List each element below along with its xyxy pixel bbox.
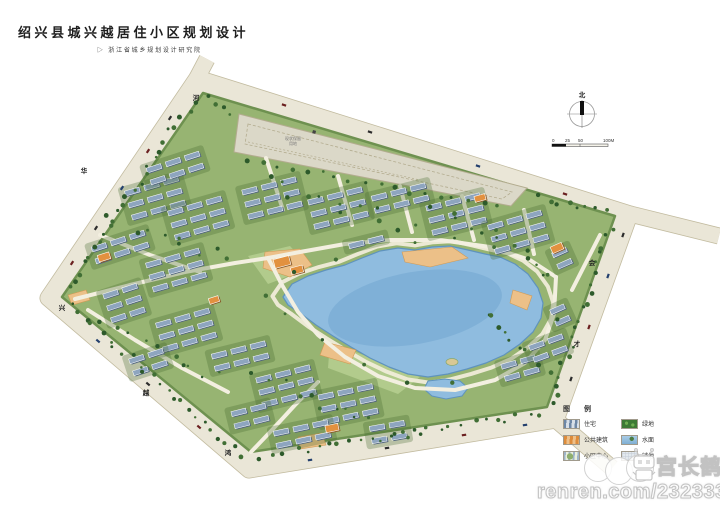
road-name-label: 华 [81,166,88,175]
road-name-label: 才 [574,339,581,348]
legend-label: 住宅 [584,419,596,428]
island-shape [446,359,458,366]
legend-item-residential: 住宅 [563,418,619,429]
north-label: 北 [579,90,586,99]
road-name-label: 兴 [59,303,66,312]
community-center-swatch-icon [563,451,580,461]
compass-icon: 北 [556,88,608,134]
subtitle-marker: ▷ [97,48,105,54]
legend-label: 水面 [642,435,654,444]
legend-item-water: 水面 [621,434,677,445]
road-name-label: 河 [193,93,200,102]
residential-swatch-icon [563,419,580,429]
legend-item-public: 公共建筑 [563,434,619,445]
legend-title: 图 例 [563,404,677,414]
watermark-url: renren.com/232333316 [537,481,720,504]
public-building-swatch-icon [563,435,580,445]
page-subtitle: ▷ 浙江省城乡规划设计研究院 [97,45,202,54]
greenspace-swatch-icon [621,419,638,429]
road-name-label: 越 [142,388,150,397]
subtitle-text: 浙江省城乡规划设计研究院 [108,48,202,54]
legend-label: 公共建筑 [584,435,608,444]
scale-bar-icon: 0 25 50 100M [548,137,620,151]
scale-bar: 0 25 50 100M [548,137,620,156]
scale-0: 0 [552,138,555,143]
watermark-name: 宫长鹤 [656,451,720,481]
compass-north-indicator: 北 [556,88,608,139]
poster-page: 绍兴县城兴越居住小区规划设计 ▷ 浙江省城乡规划设计研究院 现状保留用地河华兴越… [0,0,720,509]
water-swatch-icon [621,435,638,445]
scale-100: 100M [603,138,615,143]
watermark-robot-icon [631,448,657,484]
legend-label: 绿地 [642,419,654,428]
legend-item-green: 绿地 [621,418,677,429]
road-name-label: 鸿 [225,448,232,457]
compass-needle [580,101,584,115]
road-name-label: 会 [589,258,596,267]
parcel-label: 用地 [289,140,297,146]
page-title: 绍兴县城兴越居住小区规划设计 [18,22,249,41]
scale-50: 50 [578,138,584,143]
scale-25: 25 [565,138,571,143]
